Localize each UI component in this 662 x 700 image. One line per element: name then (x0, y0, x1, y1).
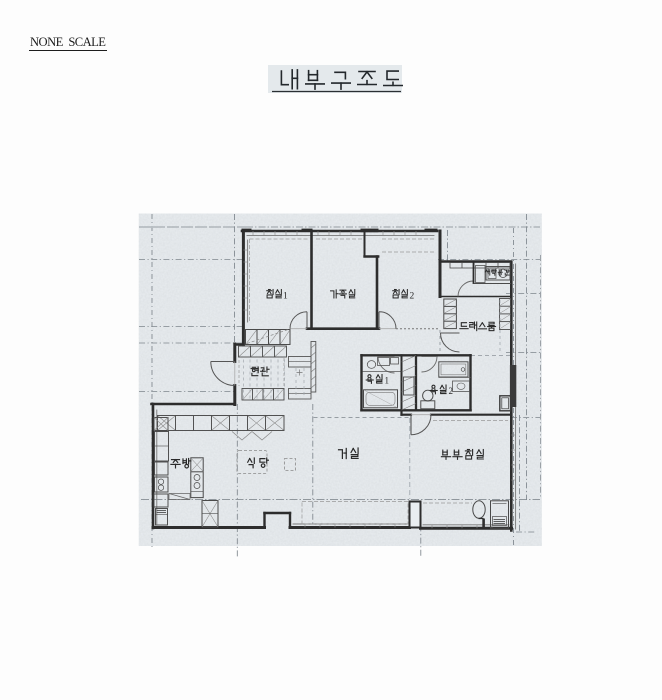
svg-text:1: 1 (385, 376, 390, 386)
svg-text:2: 2 (410, 292, 415, 302)
svg-text:NONE SCALE: NONE SCALE (30, 35, 106, 49)
svg-text:2: 2 (449, 386, 454, 396)
svg-text:1: 1 (283, 292, 288, 302)
